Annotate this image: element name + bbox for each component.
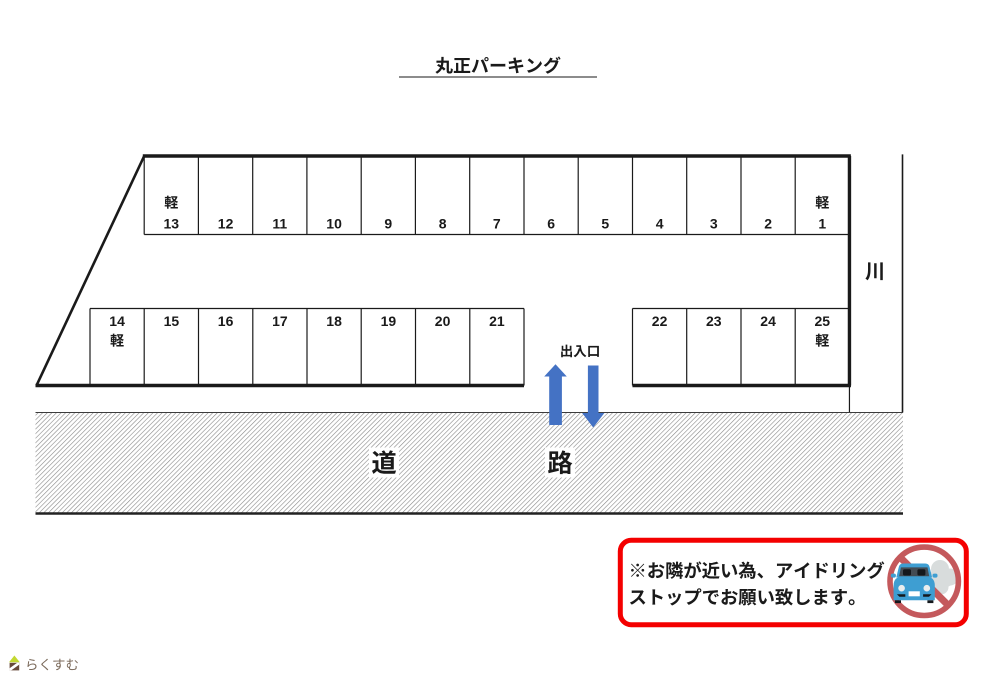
svg-text:15: 15 [164, 313, 180, 329]
svg-text:1: 1 [818, 215, 826, 231]
svg-text:17: 17 [272, 313, 288, 329]
svg-text:6: 6 [547, 215, 555, 231]
svg-text:12: 12 [218, 215, 234, 231]
svg-text:20: 20 [435, 313, 451, 329]
svg-text:2: 2 [764, 215, 772, 231]
svg-text:9: 9 [384, 215, 392, 231]
svg-text:8: 8 [439, 215, 447, 231]
svg-text:3: 3 [710, 215, 718, 231]
svg-text:24: 24 [760, 313, 776, 329]
svg-text:21: 21 [489, 313, 505, 329]
svg-text:14: 14 [109, 313, 125, 329]
svg-text:19: 19 [381, 313, 397, 329]
svg-text:4: 4 [656, 215, 664, 231]
svg-text:7: 7 [493, 215, 501, 231]
svg-text:10: 10 [326, 215, 342, 231]
svg-text:18: 18 [326, 313, 342, 329]
svg-text:22: 22 [652, 313, 668, 329]
svg-text:16: 16 [218, 313, 234, 329]
svg-text:5: 5 [601, 215, 609, 231]
svg-text:13: 13 [164, 215, 180, 231]
svg-text:11: 11 [272, 215, 287, 231]
svg-text:23: 23 [706, 313, 722, 329]
svg-text:25: 25 [815, 313, 831, 329]
